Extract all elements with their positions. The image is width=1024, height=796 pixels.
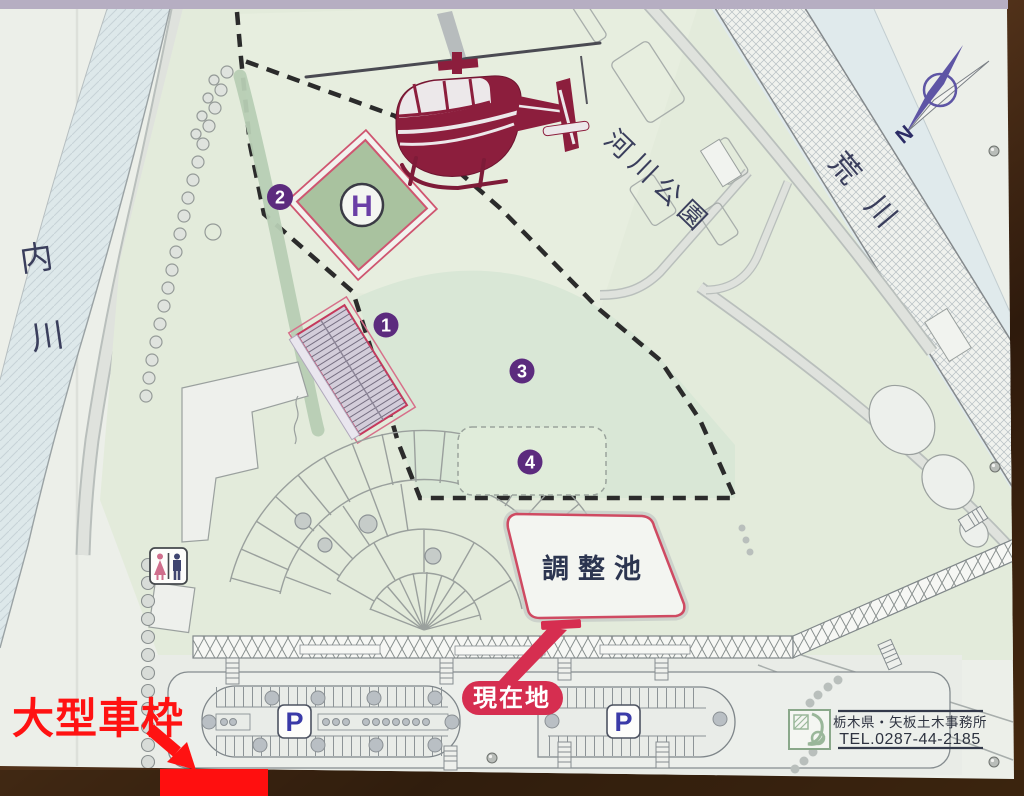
photo-of-park-map-sign: H <box>0 0 1024 796</box>
parking-sign-right: P <box>607 705 640 738</box>
svg-text:P: P <box>614 707 632 737</box>
parking-lot-left <box>202 686 460 757</box>
annotation-highlight-rect <box>160 769 268 796</box>
office-name: 栃木県・矢板土木事務所 <box>833 715 987 730</box>
svg-text:4: 4 <box>525 453 535 473</box>
park-map-sign: H <box>0 0 1024 796</box>
svg-text:P: P <box>285 707 303 737</box>
prefecture-logo-icon <box>789 710 830 749</box>
regulation-pond: 調整池 <box>508 514 685 618</box>
zone-marker-4: 4 <box>518 450 543 475</box>
svg-text:2: 2 <box>275 188 285 208</box>
sign-top-frame <box>0 0 1008 9</box>
svg-text:1: 1 <box>381 316 391 336</box>
office-tel: TEL.0287-44-2185 <box>839 731 980 748</box>
zone-marker-3: 3 <box>510 359 535 384</box>
helipad-letter: H <box>351 190 373 223</box>
zone-marker-1: 1 <box>374 313 399 338</box>
current-location-label: 現在地 <box>473 684 551 712</box>
zone-marker-2: 2 <box>267 184 293 210</box>
office-info: 栃木県・矢板土木事務所 TEL.0287-44-2185 <box>789 710 987 749</box>
pond-label: 調整池 <box>542 553 650 584</box>
toilet-icon <box>150 548 187 584</box>
svg-text:3: 3 <box>517 362 527 382</box>
parking-sign-left: P <box>278 705 311 738</box>
